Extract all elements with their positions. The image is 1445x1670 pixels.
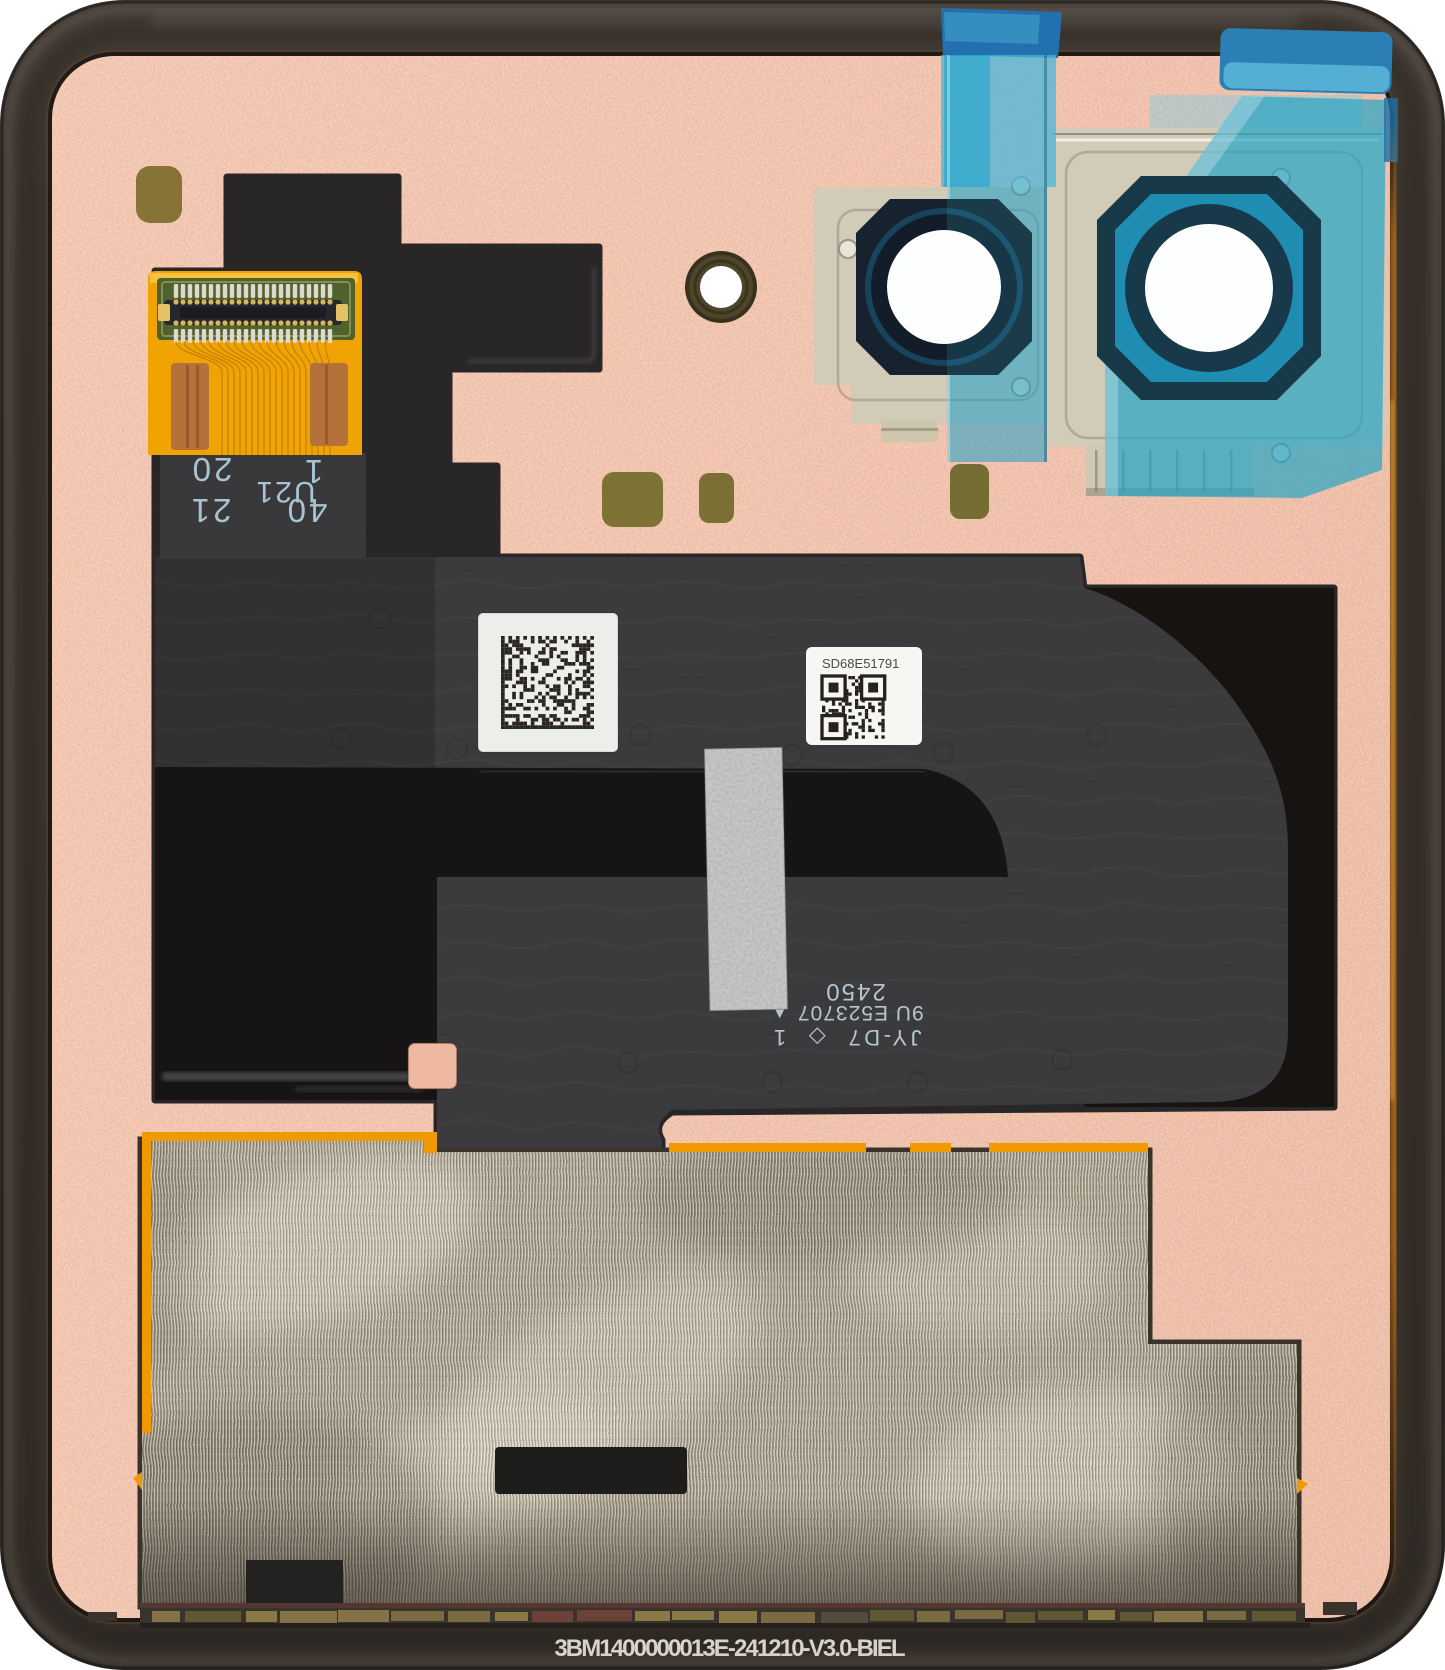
svg-text:SD68E51791: SD68E51791 [822, 656, 899, 671]
svg-text:20: 20 [190, 451, 233, 488]
svg-text:2450: 2450 [824, 978, 885, 1005]
svg-text:JY-D7 ◇ 1: JY-D7 ◇ 1 [770, 1025, 921, 1050]
svg-text:1: 1 [305, 453, 323, 490]
svg-text:3BM1400000013E-241210-V3.0-BIE: 3BM1400000013E-241210-V3.0-BIEL [554, 1635, 905, 1662]
svg-text:40: 40 [285, 492, 328, 529]
svg-text:9U E523707 ▲: 9U E523707 ▲ [768, 1001, 923, 1024]
svg-text:21: 21 [189, 492, 232, 529]
